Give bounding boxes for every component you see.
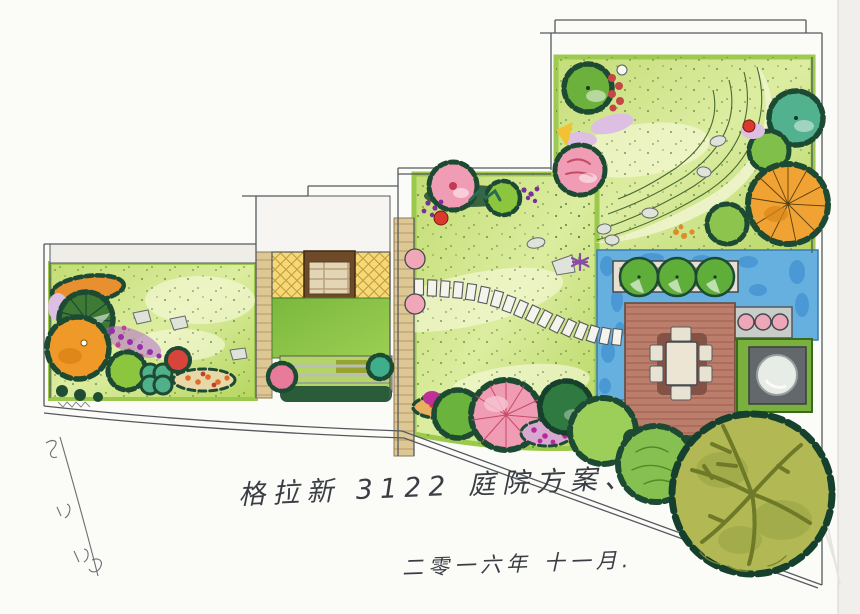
tree-orange-fan <box>748 164 828 244</box>
scan-edge <box>838 0 860 614</box>
round-paver <box>405 249 425 269</box>
garden-plan-scan: 格拉新 3122 庭院方案、 二零一六年 十一月. <box>0 0 860 614</box>
house-wall-band <box>256 196 390 252</box>
dining-table <box>666 342 697 385</box>
brick-feature-wall <box>304 251 355 299</box>
tree-pink-middle <box>429 162 477 210</box>
chair <box>650 345 663 361</box>
paving-crosshatch-left <box>272 252 306 298</box>
flower-red <box>743 120 755 132</box>
dining-set <box>650 327 712 400</box>
flower-red <box>434 211 448 225</box>
left-garden-wall <box>50 244 256 263</box>
tree-pink-small <box>268 363 296 391</box>
site-plan-drawing <box>0 0 860 614</box>
chair <box>699 345 712 361</box>
stone-round <box>617 65 627 75</box>
hot-tub <box>737 339 812 412</box>
spa-seat-strip <box>732 307 792 338</box>
shrub-green <box>707 204 747 244</box>
planter-shrubs <box>620 258 734 296</box>
courtyard-lawn-panel <box>272 298 390 358</box>
paving-crosshatch-right <box>354 252 390 300</box>
chair <box>671 386 691 400</box>
shrub-apple <box>486 181 520 215</box>
tree-orange-large <box>47 317 109 379</box>
tree-teal-small <box>368 355 392 379</box>
flowerbed-orange <box>173 369 235 391</box>
courtyard-hedge <box>280 386 392 402</box>
tree-red <box>166 348 190 372</box>
chair <box>699 366 712 382</box>
tree-olive-giant <box>672 414 832 574</box>
round-paver <box>405 294 425 314</box>
chair <box>671 327 691 341</box>
planter-box <box>613 258 738 296</box>
tree-green-upper <box>564 64 612 112</box>
chair <box>650 366 663 382</box>
tree-pink-upper <box>555 145 605 195</box>
wood-deck <box>625 303 735 437</box>
